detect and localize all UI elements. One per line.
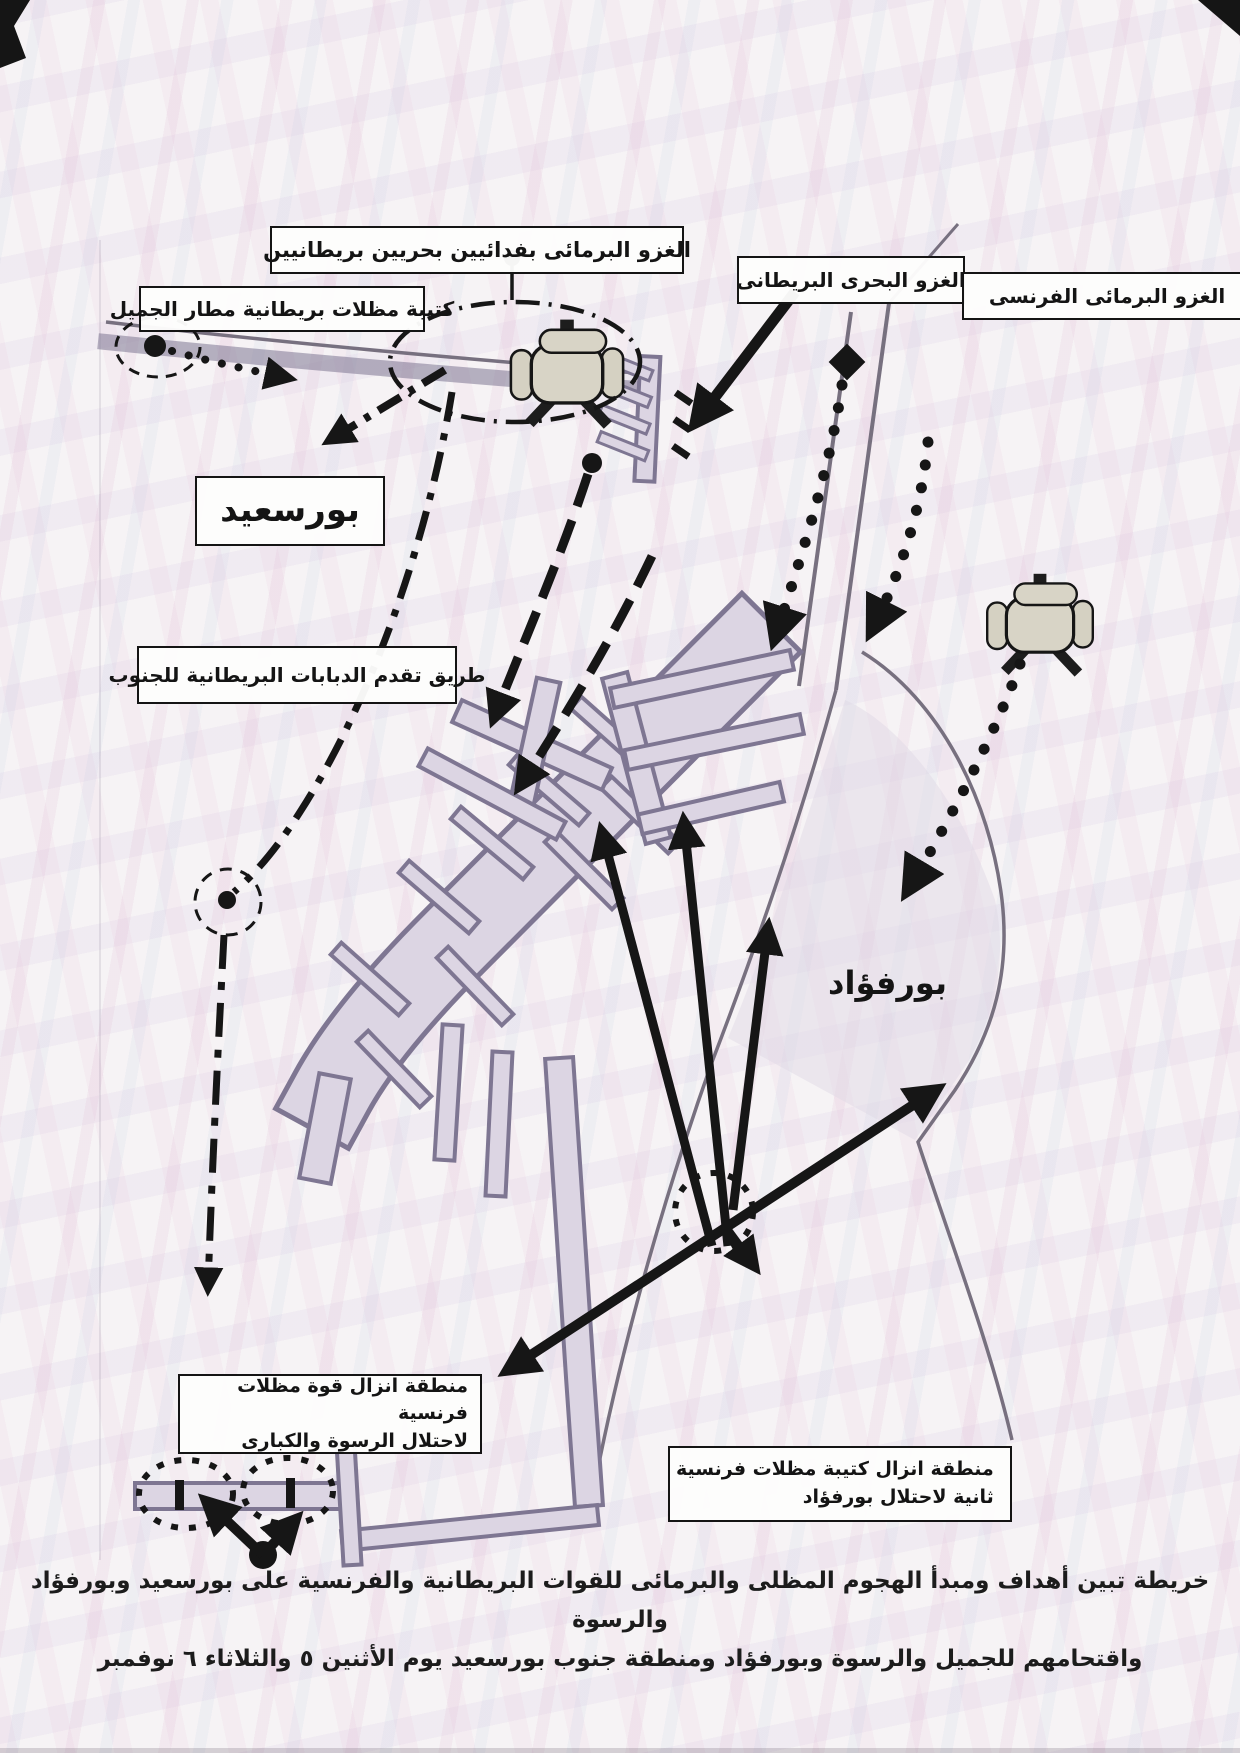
raswa-assault-arrows [139,1458,333,1569]
solid-arrow-icon [696,292,795,422]
callout-raswa-drop-zone: منطقة انزال قوة مظلات فرنسية لاحتلال الر… [178,1374,482,1454]
raswa-drop-line-2: لاحتلال الرسوة والكبارى [186,1428,468,1456]
caption-line-1: خريطة تبين أهداف ومبدأ الهجوم المظلى وال… [0,1562,1240,1640]
diamond-marker-icon [829,344,866,381]
solid-arrow-icon [733,928,768,1210]
position-dot-icon [218,891,236,909]
callout-tank-route: طريق تقدم الدبابات البريطانية للجنوب [137,646,457,704]
coastline-and-harbour [106,224,1012,1556]
city-label-port-said: بورسعيد [195,476,385,546]
raswa-drop-line-1: منطقة انزال قوة مظلات فرنسية [186,1373,468,1428]
callout-french-amphibious-invasion: الغزو البرمائى الفرنسى [962,272,1240,320]
callout-british-amphibious-commandos: الغزو البرمائى بفدائيين بحريين بريطانيين [270,226,684,274]
second-drop-line-1: منطقة انزال كتيبة مظلات فرنسية [676,1456,994,1484]
city-label-port-fouad: بورفؤاد [805,955,970,1011]
bridge-tick-icon [286,1478,295,1508]
position-dot-icon [582,453,602,473]
callout-gamil-paratroops: كتيبة مظلات بريطانية مطار الجميل [139,286,425,332]
callout-british-naval-invasion: الغزو البحرى البريطانى [737,256,965,304]
second-drop-line-2: ثانية لاحتلال بورفؤاد [676,1484,994,1512]
dash-dot-line-icon [234,392,452,892]
position-dot-icon [144,335,166,357]
british-naval-assault-arrow [696,292,795,422]
dash-dot-arrow-icon [208,935,224,1288]
bridge-tick-icon [175,1480,184,1510]
solid-arrow-icon [263,1520,295,1555]
map-caption: خريطة تبين أهداف ومبدأ الهجوم المظلى وال… [0,1562,1240,1679]
callout-second-drop-zone: منطقة انزال كتيبة مظلات فرنسية ثانية لاح… [668,1446,1012,1522]
landing-craft-icon [987,574,1093,673]
caption-line-2: واقتحامهم للجميل والرسوة وبورفؤاد ومنطقة… [0,1640,1240,1679]
dotted-arrow-icon [872,442,928,630]
scanned-map-page: الغزو البرمائى بفدائيين بحريين بريطانيين… [0,0,1240,1753]
dotted-arrow-icon [775,385,842,638]
